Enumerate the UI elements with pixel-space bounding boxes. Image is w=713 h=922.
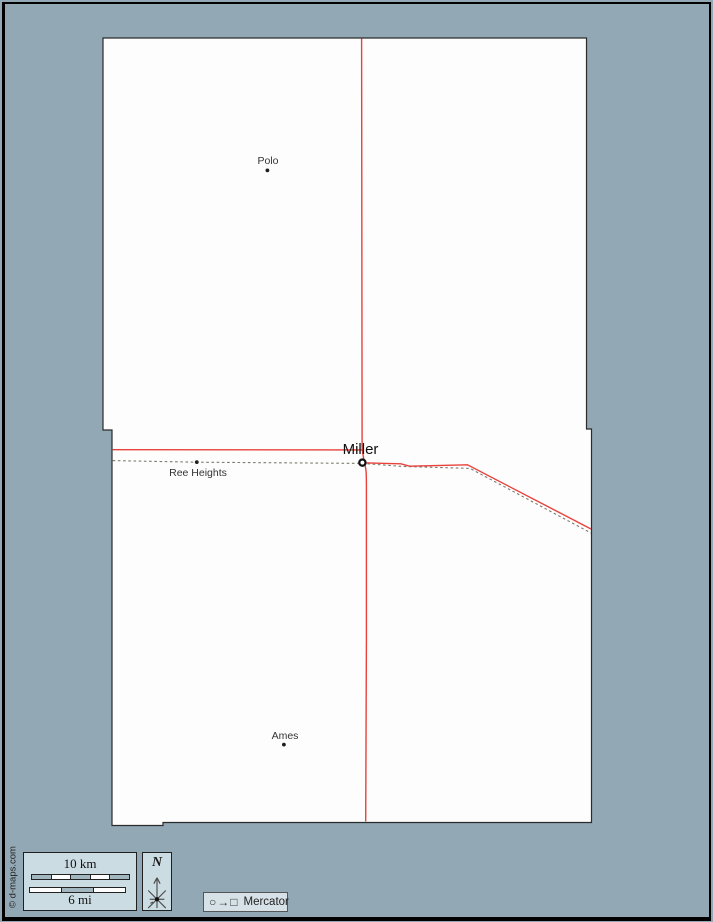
town-label-miller: Miller <box>343 441 379 458</box>
map-svg <box>0 0 713 922</box>
projection-label: Mercator <box>244 896 289 908</box>
north-label: N <box>152 855 162 871</box>
scale-bar-segment <box>51 875 71 879</box>
projection-badge: ○→□ Mercator <box>203 892 288 912</box>
town-label-ree-heights: Ree Heights <box>169 467 227 479</box>
county-seat-marker-miller <box>359 460 365 466</box>
scale-bar-segment <box>32 875 51 879</box>
copyright-text: © d-maps.com <box>8 846 19 908</box>
projection-symbols-icon: ○→□ <box>209 895 239 909</box>
town-dot-ames <box>282 743 286 747</box>
scale-mi-label: 6 mi <box>24 892 136 908</box>
scale-bar-segment <box>90 875 110 879</box>
scale-bar-segment <box>70 875 90 879</box>
town-dot-ree-heights <box>195 460 199 464</box>
town-label-ames: Ames <box>272 730 299 742</box>
scale-bar-segment <box>109 875 129 879</box>
scale-bar-km <box>31 874 130 880</box>
north-panel: N <box>142 852 172 911</box>
town-dot-polo <box>266 169 270 173</box>
town-label-polo: Polo <box>257 155 278 167</box>
map-canvas: Polo Ree Heights Ames Miller 10 km 6 mi … <box>0 0 713 922</box>
compass-rose-icon <box>143 871 171 910</box>
scale-panel: 10 km 6 mi <box>23 852 137 911</box>
county-shape <box>103 38 592 826</box>
scale-km-label: 10 km <box>24 856 136 872</box>
